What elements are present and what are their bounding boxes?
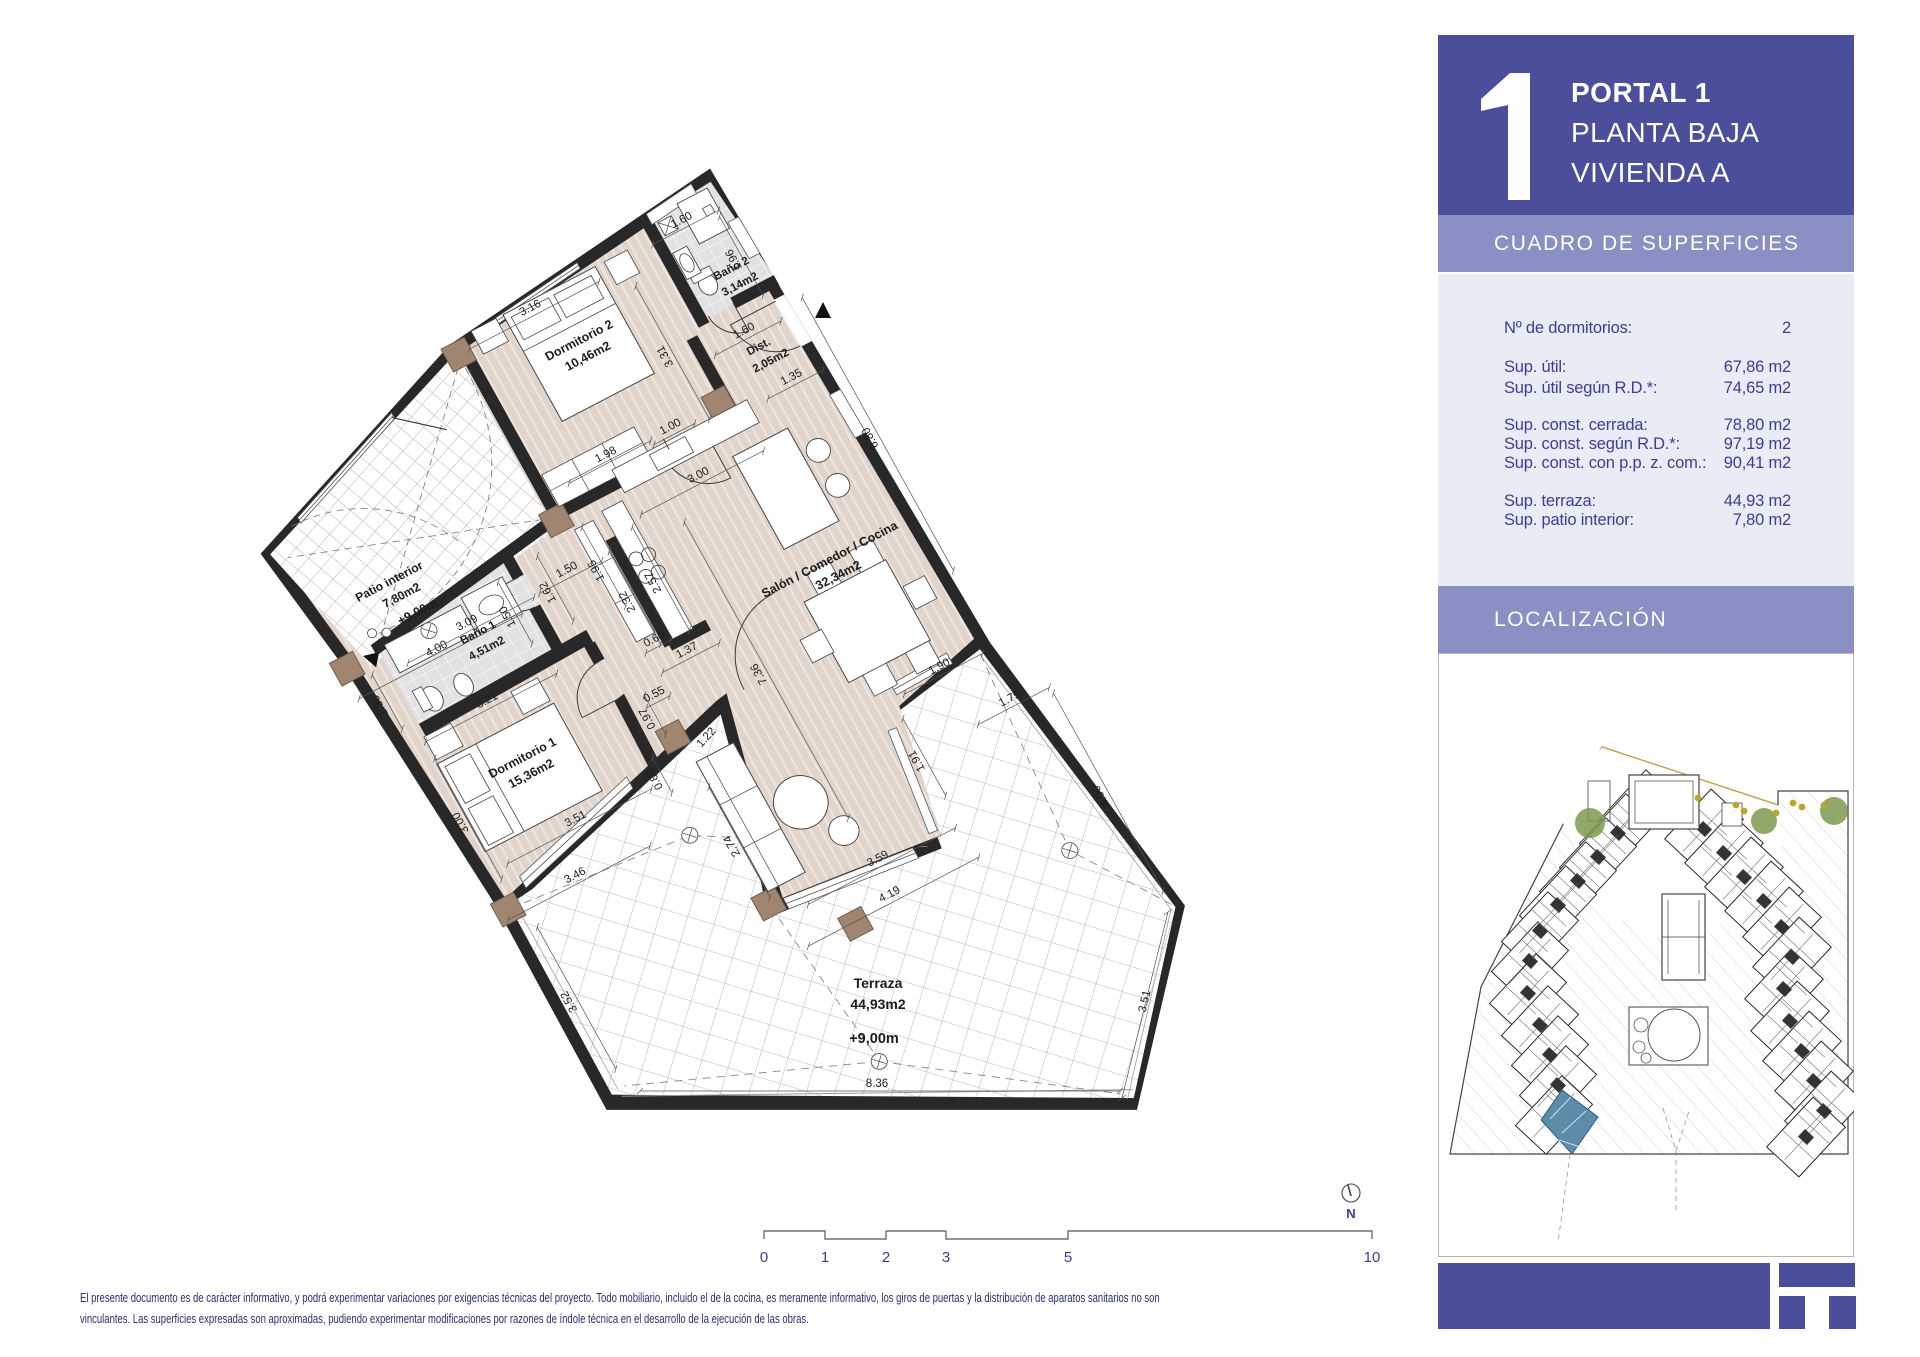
svg-text:0: 0: [760, 1249, 768, 1266]
svg-text:44,93m2: 44,93m2: [850, 996, 905, 1012]
svg-text:10: 10: [1364, 1249, 1381, 1266]
svg-text:Terraza: Terraza: [854, 975, 903, 991]
svg-text:N: N: [1346, 1206, 1355, 1221]
svg-text:5: 5: [1064, 1249, 1072, 1266]
svg-text:3: 3: [942, 1249, 950, 1266]
svg-text:8.36: 8.36: [866, 1078, 888, 1090]
svg-text:+9,00m: +9,00m: [849, 1031, 899, 1047]
svg-text:2: 2: [882, 1249, 890, 1266]
svg-text:1: 1: [821, 1249, 829, 1266]
